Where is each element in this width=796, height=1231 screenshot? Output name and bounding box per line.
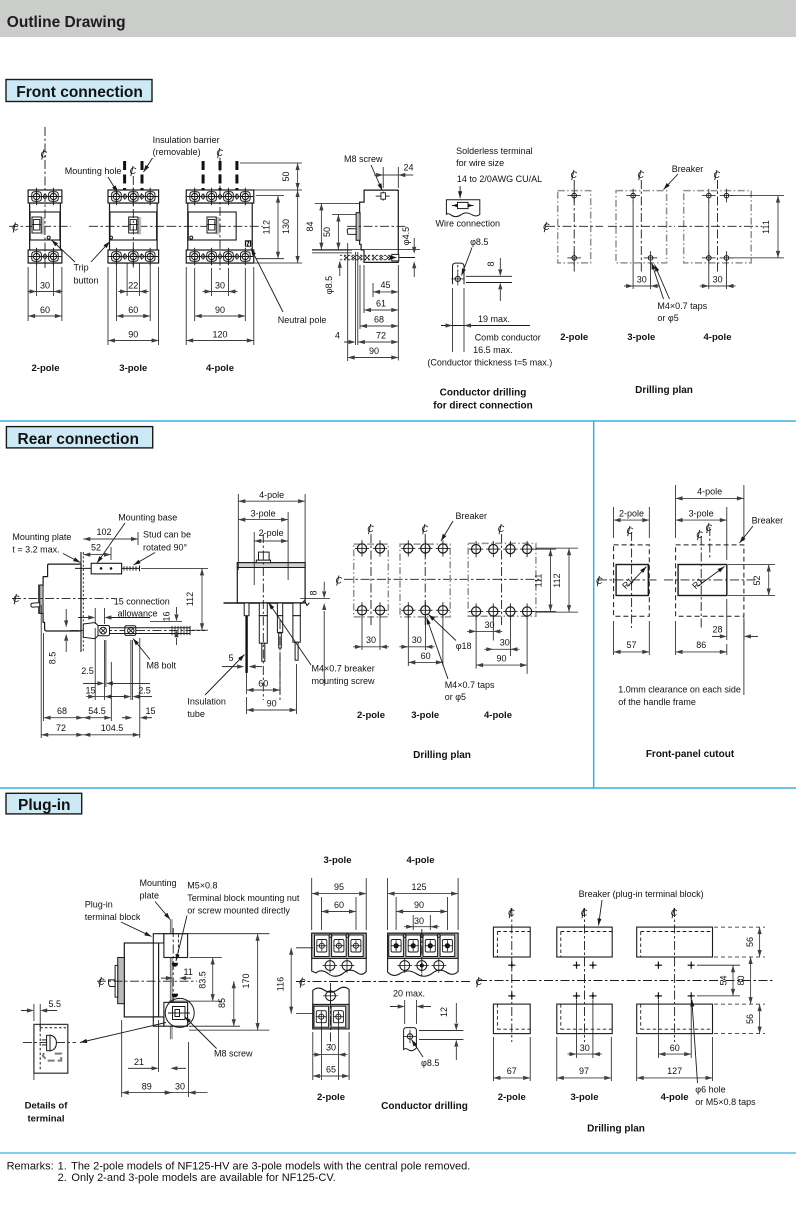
svg-text:90: 90 <box>414 900 424 910</box>
svg-text:4-pole: 4-pole <box>697 487 722 497</box>
svg-text:Mounting base: Mounting base <box>118 513 177 523</box>
svg-text:4: 4 <box>335 331 340 341</box>
svg-text:57: 57 <box>626 640 636 650</box>
svg-text:M4×0.7 taps: M4×0.7 taps <box>657 301 707 311</box>
svg-text:30: 30 <box>637 275 647 285</box>
svg-text:Solderless terminal: Solderless terminal <box>456 146 533 156</box>
svg-text:Details of: Details of <box>25 1101 69 1112</box>
svg-text:112: 112 <box>185 592 195 606</box>
svg-text:for direct connection: for direct connection <box>433 401 532 412</box>
svg-text:3-pole: 3-pole <box>571 1092 599 1103</box>
svg-text:φ18: φ18 <box>456 641 472 651</box>
svg-text:83.5: 83.5 <box>198 971 208 989</box>
svg-text:3-pole: 3-pole <box>689 509 714 519</box>
svg-text:60: 60 <box>421 651 431 661</box>
svg-text:φ8.5: φ8.5 <box>421 1058 439 1068</box>
svg-text:Drilling plan: Drilling plan <box>635 385 693 396</box>
svg-text:15: 15 <box>85 686 95 696</box>
svg-text:Mounting plate: Mounting plate <box>12 532 71 542</box>
svg-text:Rear connection: Rear connection <box>18 431 139 448</box>
svg-text:2-pole: 2-pole <box>259 528 284 538</box>
svg-text:60: 60 <box>128 305 138 315</box>
svg-text:56: 56 <box>745 1014 755 1024</box>
svg-text:125: 125 <box>411 882 426 892</box>
svg-text:Mounting hole: Mounting hole <box>65 166 122 176</box>
svg-text:30: 30 <box>366 635 376 645</box>
svg-text:30: 30 <box>500 638 510 648</box>
svg-text:3-pole: 3-pole <box>411 710 439 721</box>
svg-text:for wire size: for wire size <box>456 158 504 168</box>
svg-text:Trip: Trip <box>74 263 89 273</box>
svg-text:M8 bolt: M8 bolt <box>147 661 177 671</box>
svg-text:52: 52 <box>752 575 762 585</box>
svg-text:Insulation barrier: Insulation barrier <box>153 135 220 145</box>
svg-text:M5×0.8: M5×0.8 <box>187 881 217 891</box>
svg-text:of the handle frame: of the handle frame <box>618 697 696 707</box>
svg-text:30: 30 <box>580 1043 590 1053</box>
svg-text:102: 102 <box>96 527 111 537</box>
svg-text:60: 60 <box>40 305 50 315</box>
svg-text:The 2-pole models of NF125-HV: The 2-pole models of NF125-HV are 3-pole… <box>71 1161 470 1173</box>
svg-text:Insulation: Insulation <box>187 697 226 707</box>
svg-text:Stud can be: Stud can be <box>143 530 191 540</box>
svg-text:Wire connection: Wire connection <box>436 219 501 229</box>
svg-text:30: 30 <box>713 275 723 285</box>
svg-text:2-pole: 2-pole <box>560 332 588 343</box>
svg-text:50: 50 <box>322 227 332 237</box>
svg-text:Mounting: Mounting <box>140 878 177 888</box>
svg-text:61: 61 <box>376 299 386 309</box>
svg-text:28: 28 <box>712 625 722 635</box>
svg-text:2-pole: 2-pole <box>498 1092 526 1103</box>
svg-text:Only 2-and 3-pole models are a: Only 2-and 3-pole models are available f… <box>71 1172 335 1184</box>
svg-text:30: 30 <box>412 635 422 645</box>
svg-text:2-pole: 2-pole <box>317 1092 345 1103</box>
svg-text:Conductor drilling: Conductor drilling <box>440 388 527 399</box>
svg-text:111: 111 <box>761 220 771 234</box>
svg-text:rotated 90°: rotated 90° <box>143 543 188 553</box>
svg-text:Front-panel cutout: Front-panel cutout <box>646 749 735 760</box>
svg-text:φ6 hole: φ6 hole <box>695 1085 725 1095</box>
svg-text:72: 72 <box>376 331 386 341</box>
svg-text:30: 30 <box>40 281 50 291</box>
svg-text:3-pole: 3-pole <box>119 363 147 374</box>
svg-text:15: 15 <box>145 706 155 716</box>
svg-text:90: 90 <box>128 330 138 340</box>
svg-text:8: 8 <box>309 590 319 595</box>
svg-text:52: 52 <box>91 543 101 553</box>
svg-text:3-pole: 3-pole <box>324 855 352 866</box>
svg-text:Breaker: Breaker <box>456 511 488 521</box>
svg-text:14 to 2/0AWG CU/AL: 14 to 2/0AWG CU/AL <box>457 174 542 184</box>
svg-text:112: 112 <box>552 573 562 587</box>
svg-text:4-pole: 4-pole <box>704 332 732 343</box>
svg-text:Front connection: Front connection <box>16 84 143 101</box>
svg-text:Breaker (plug-in terminal bloc: Breaker (plug-in terminal block) <box>579 889 704 899</box>
svg-text:Drilling plan: Drilling plan <box>413 750 471 761</box>
svg-text:terminal block: terminal block <box>85 912 141 922</box>
svg-text:130: 130 <box>281 219 291 234</box>
svg-text:30: 30 <box>414 916 424 926</box>
svg-text:22: 22 <box>128 281 138 291</box>
svg-text:12: 12 <box>439 1007 449 1017</box>
svg-text:30: 30 <box>215 281 225 291</box>
svg-text:86: 86 <box>696 640 706 650</box>
svg-text:2-pole: 2-pole <box>357 710 385 721</box>
svg-text:Terminal block mounting nut: Terminal block mounting nut <box>187 893 300 903</box>
svg-text:95: 95 <box>334 882 344 892</box>
svg-text:16: 16 <box>162 611 172 621</box>
svg-text:φ8.5: φ8.5 <box>324 276 334 294</box>
svg-text:127: 127 <box>667 1066 682 1076</box>
svg-text:1.: 1. <box>58 1161 67 1173</box>
svg-text:or φ5: or φ5 <box>657 313 678 323</box>
svg-text:M8 screw: M8 screw <box>344 154 383 164</box>
svg-text:4-pole: 4-pole <box>259 490 284 500</box>
svg-text:M4×0.7 taps: M4×0.7 taps <box>445 680 495 690</box>
svg-text:2-pole: 2-pole <box>32 363 60 374</box>
svg-text:60: 60 <box>334 900 344 910</box>
svg-text:54.5: 54.5 <box>88 706 106 716</box>
svg-text:Plug-in: Plug-in <box>85 900 113 910</box>
svg-text:15 connection: 15 connection <box>114 597 170 607</box>
svg-text:allowance: allowance <box>118 609 158 619</box>
svg-text:Conductor drilling: Conductor drilling <box>381 1101 468 1112</box>
svg-text:8.5: 8.5 <box>48 652 58 665</box>
svg-text:5.5: 5.5 <box>49 999 62 1009</box>
svg-text:Plug-in: Plug-in <box>18 797 71 814</box>
svg-text:21: 21 <box>134 1057 144 1067</box>
svg-text:4-pole: 4-pole <box>206 363 234 374</box>
svg-text:Remarks:: Remarks: <box>7 1161 54 1173</box>
svg-text:85: 85 <box>217 998 227 1008</box>
svg-text:Comb conductor: Comb conductor <box>475 333 541 343</box>
svg-text:20 max.: 20 max. <box>393 989 425 999</box>
svg-text:120: 120 <box>212 330 227 340</box>
svg-text:97: 97 <box>579 1066 589 1076</box>
svg-text:90: 90 <box>496 654 506 664</box>
svg-text:2.5: 2.5 <box>81 666 94 676</box>
svg-text:90: 90 <box>267 699 277 709</box>
svg-text:68: 68 <box>57 706 67 716</box>
svg-text:Drilling plan: Drilling plan <box>587 1124 645 1135</box>
svg-text:90: 90 <box>215 305 225 315</box>
svg-text:tube: tube <box>187 709 205 719</box>
svg-text:M8 screw: M8 screw <box>214 1049 253 1059</box>
svg-text:11: 11 <box>184 967 193 977</box>
svg-text:24: 24 <box>404 163 414 173</box>
svg-text:72: 72 <box>56 723 66 733</box>
svg-text:2-pole: 2-pole <box>619 509 644 519</box>
svg-text:30: 30 <box>326 1043 336 1053</box>
svg-text:or screw mounted directly: or screw mounted directly <box>187 906 290 916</box>
svg-text:4-pole: 4-pole <box>661 1092 689 1103</box>
svg-text:16.5 max.: 16.5 max. <box>473 345 513 355</box>
svg-text:mounting screw: mounting screw <box>312 676 376 686</box>
svg-text:or M5×0.8 taps: or M5×0.8 taps <box>695 1097 756 1107</box>
svg-text:50: 50 <box>281 171 291 181</box>
svg-text:Breaker: Breaker <box>752 516 784 526</box>
svg-text:30: 30 <box>484 620 494 630</box>
svg-text:Breaker: Breaker <box>672 164 704 174</box>
svg-text:t = 3.2 max.: t = 3.2 max. <box>12 545 59 555</box>
svg-text:M4×0.7 breaker: M4×0.7 breaker <box>312 664 375 674</box>
svg-text:68: 68 <box>374 315 384 325</box>
svg-text:N: N <box>246 241 251 248</box>
svg-text:φ8.5: φ8.5 <box>470 237 488 247</box>
svg-text:3-pole: 3-pole <box>627 332 655 343</box>
svg-text:4-pole: 4-pole <box>407 855 435 866</box>
svg-text:(removable): (removable) <box>153 147 201 157</box>
svg-text:90: 90 <box>369 346 379 356</box>
svg-text:84: 84 <box>305 221 315 231</box>
svg-text:170: 170 <box>241 973 251 988</box>
svg-text:60: 60 <box>258 679 268 689</box>
svg-text:111: 111 <box>534 574 544 588</box>
svg-text:104.5: 104.5 <box>101 723 124 733</box>
svg-text:19 max.: 19 max. <box>478 314 510 324</box>
svg-text:60: 60 <box>670 1043 680 1053</box>
svg-text:5: 5 <box>228 653 233 663</box>
svg-text:80: 80 <box>736 975 746 985</box>
svg-text:(Conductor thickness t=5 max.): (Conductor thickness t=5 max.) <box>427 358 552 368</box>
svg-text:or φ5: or φ5 <box>445 692 466 702</box>
svg-text:112: 112 <box>261 220 271 234</box>
svg-text:Outline Drawing: Outline Drawing <box>7 14 126 31</box>
svg-text:54: 54 <box>719 975 729 985</box>
svg-text:4-pole: 4-pole <box>484 710 512 721</box>
svg-text:Neutral pole: Neutral pole <box>278 315 327 325</box>
svg-text:button: button <box>74 276 99 286</box>
svg-text:45: 45 <box>380 280 390 290</box>
svg-text:1.0mm clearance on each side: 1.0mm clearance on each side <box>618 685 741 695</box>
svg-text:89: 89 <box>142 1082 152 1092</box>
svg-text:plate: plate <box>140 891 160 901</box>
svg-text:56: 56 <box>745 937 755 947</box>
svg-text:3-pole: 3-pole <box>251 509 276 519</box>
svg-text:2.: 2. <box>58 1172 67 1184</box>
svg-text:8: 8 <box>486 261 496 266</box>
svg-text:terminal: terminal <box>28 1114 65 1125</box>
svg-text:116: 116 <box>276 977 286 991</box>
svg-text:67: 67 <box>507 1066 517 1076</box>
svg-text:30: 30 <box>175 1082 185 1092</box>
svg-text:65: 65 <box>326 1065 336 1075</box>
svg-text:φ4.5: φ4.5 <box>401 227 411 245</box>
